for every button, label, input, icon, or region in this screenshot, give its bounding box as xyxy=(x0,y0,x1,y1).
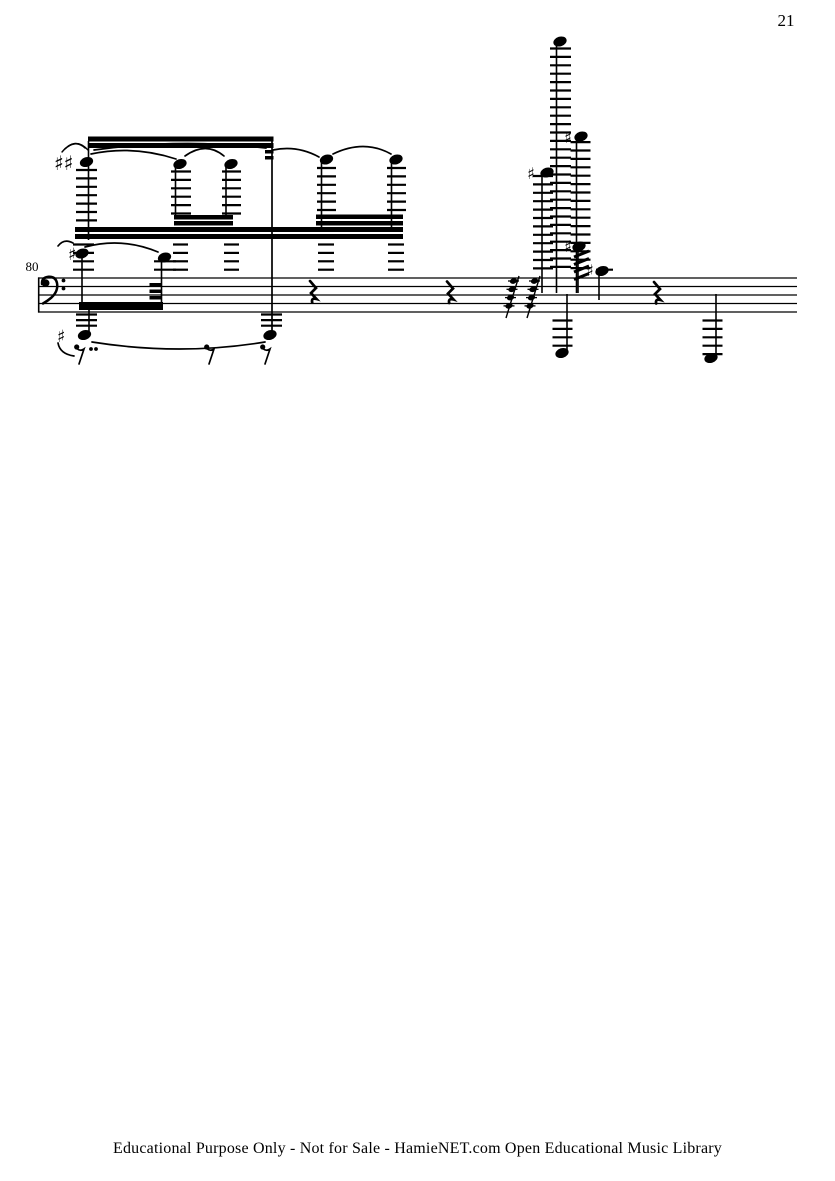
notehead xyxy=(74,247,90,260)
sharp-accidental: ♯♯ xyxy=(54,151,73,175)
bass-clef-dot xyxy=(62,279,66,283)
music-notation-canvas: ♯♯♯♯♯♯♯♯ xyxy=(0,0,835,1181)
slur xyxy=(333,147,391,155)
beam xyxy=(75,234,403,239)
quarter-rest xyxy=(447,282,454,304)
sharp-accidental: ♯ xyxy=(586,261,594,280)
slur xyxy=(85,243,158,252)
sharp-accidental: ♯ xyxy=(68,245,76,265)
notehead xyxy=(388,153,404,166)
slur xyxy=(92,342,265,349)
notehead xyxy=(262,328,278,341)
notehead xyxy=(79,155,95,168)
notehead xyxy=(77,328,93,341)
notehead xyxy=(552,35,568,48)
bass-clef-dot xyxy=(62,287,66,291)
beam xyxy=(88,137,274,142)
notehead xyxy=(594,264,610,277)
sharp-accidental: ♯ xyxy=(527,164,535,183)
sharp-accidental: ♯ xyxy=(564,128,572,147)
beam xyxy=(316,221,403,226)
quarter-rest xyxy=(654,282,661,304)
slur xyxy=(273,149,319,157)
eighth-rest xyxy=(208,349,215,364)
slur xyxy=(91,150,176,159)
beam xyxy=(316,215,403,220)
sheet-music-page: 21 80 ♯♯♯♯♯♯♯♯ Educational Purpose Only … xyxy=(0,0,835,1181)
beam xyxy=(150,296,162,300)
rest-augmentation-dot xyxy=(89,347,93,351)
beam xyxy=(265,156,274,160)
beam xyxy=(150,290,162,294)
beam xyxy=(75,227,403,232)
ornament-arc xyxy=(68,144,82,147)
bass-clef xyxy=(42,277,66,304)
beam xyxy=(265,150,274,154)
beam xyxy=(79,302,163,310)
beam xyxy=(174,221,233,226)
rest-augmentation-dot xyxy=(94,347,98,351)
sharp-accidental: ♯ xyxy=(564,237,572,256)
footer-text: Educational Purpose Only - Not for Sale … xyxy=(0,1140,835,1158)
beam xyxy=(174,215,233,220)
slur xyxy=(185,149,224,157)
eighth-rest xyxy=(264,349,271,364)
beam xyxy=(150,283,162,287)
eighth-rest xyxy=(78,349,85,364)
quarter-rest xyxy=(310,281,317,303)
